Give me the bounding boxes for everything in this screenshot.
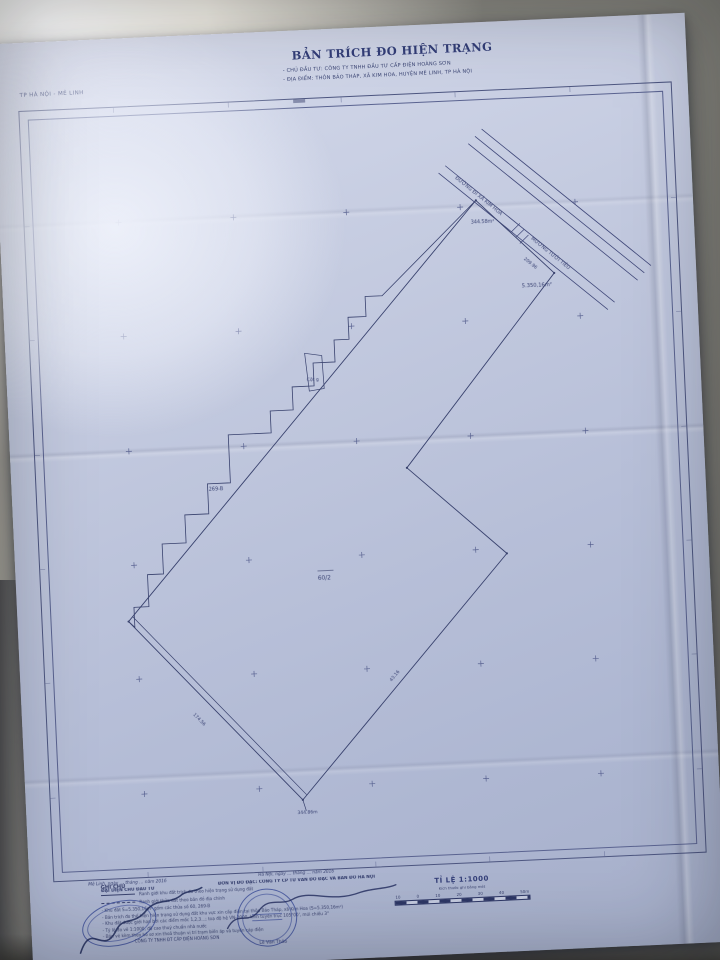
scale-tick-label: 20 (456, 892, 461, 897)
parcel-boundary (110, 197, 577, 807)
map-frame: ĐƯỜNG ĐI XÃ KIM HOA MƯƠNG TƯỚI TIÊU 344.… (18, 81, 706, 882)
edge-label-se: 43.16 (389, 669, 402, 683)
page-title: BẢN TRÍCH ĐO HIỆN TRẠNG (242, 37, 542, 65)
photo-of-survey-document: TP HÀ NỘI - MÊ LINH BẢN TRÍCH ĐO HIỆN TR… (0, 0, 720, 960)
region-label: TP HÀ NỘI - MÊ LINH (20, 90, 84, 99)
scale-tick-label: 30 (478, 891, 483, 896)
map-drawing: ĐƯỜNG ĐI XÃ KIM HOA MƯƠNG TƯỚI TIÊU 344.… (19, 82, 705, 881)
parcel-sw-double-line (132, 609, 307, 818)
dim-label: 209.96 (522, 256, 538, 271)
vertex-dots (109, 196, 579, 809)
signature-center (226, 885, 397, 929)
paper-sheet: TP HÀ NỘI - MÊ LINH BẢN TRÍCH ĐO HIỆN TR… (0, 13, 720, 960)
area-label-total: 5.350,16m² (522, 282, 552, 289)
map-labels: ĐƯỜNG ĐI XÃ KIM HOA MƯƠNG TƯỚI TIÊU 344.… (167, 169, 597, 820)
post-label: Cột g (307, 376, 319, 384)
signatures (29, 857, 434, 960)
scale-tick-label: 50m (520, 889, 529, 894)
plot-label: 269-B (209, 486, 224, 493)
scale-tick-label: 10 (435, 893, 440, 898)
stepped-boundary (110, 200, 494, 627)
road-label-1: ĐƯỜNG ĐI XÃ KIM HOA (454, 174, 505, 217)
tick-label-smudge (293, 99, 305, 103)
scale-tick-label: 0 (416, 894, 419, 899)
parcel-label: 60/2 (318, 575, 332, 582)
edge-label-sw: 174.56 (191, 712, 206, 728)
vertex-label: 344.86m (297, 809, 317, 816)
scale-tick-label: 10 (395, 895, 400, 900)
scale-tick-label: 40 (499, 890, 504, 895)
frame-ticks (19, 82, 705, 881)
parcel-label-bar (317, 570, 333, 571)
area-label-small: 344.58m² (471, 219, 495, 226)
